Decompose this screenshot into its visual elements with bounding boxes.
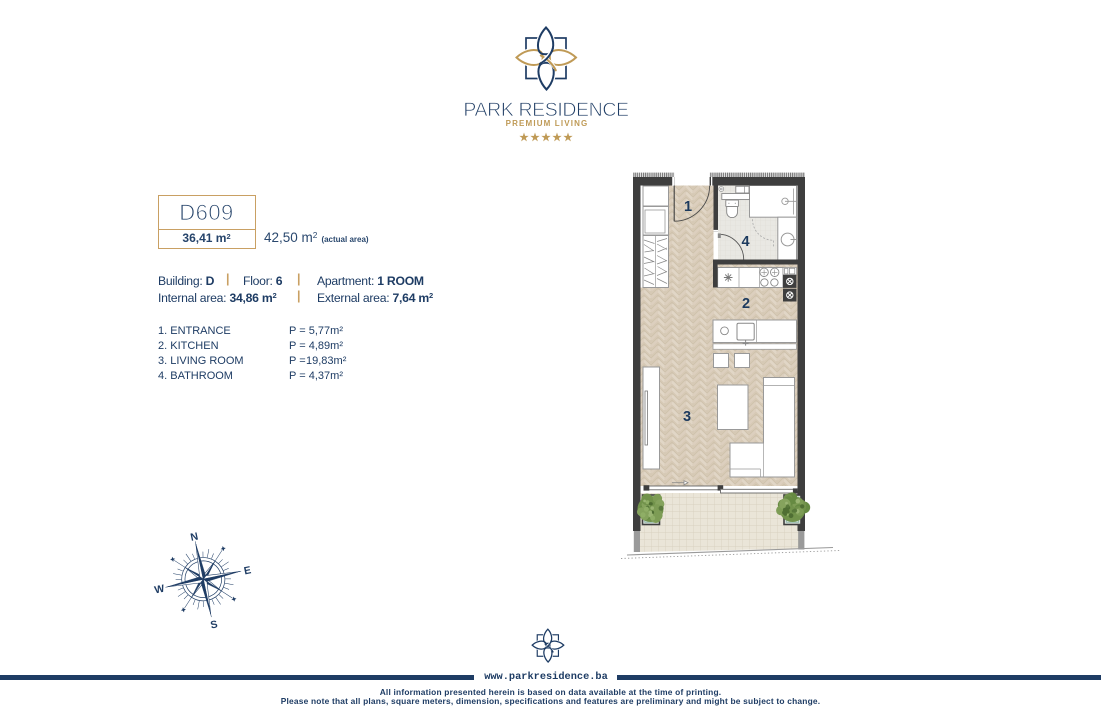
svg-text:N: N: [189, 530, 199, 543]
svg-text:2: 2: [742, 296, 750, 312]
svg-text:3: 3: [683, 409, 691, 425]
svg-text:4: 4: [741, 234, 749, 250]
svg-text:1: 1: [684, 199, 692, 215]
svg-text:W: W: [153, 583, 165, 597]
svg-text:S: S: [209, 618, 218, 631]
svg-text:E: E: [243, 564, 252, 577]
